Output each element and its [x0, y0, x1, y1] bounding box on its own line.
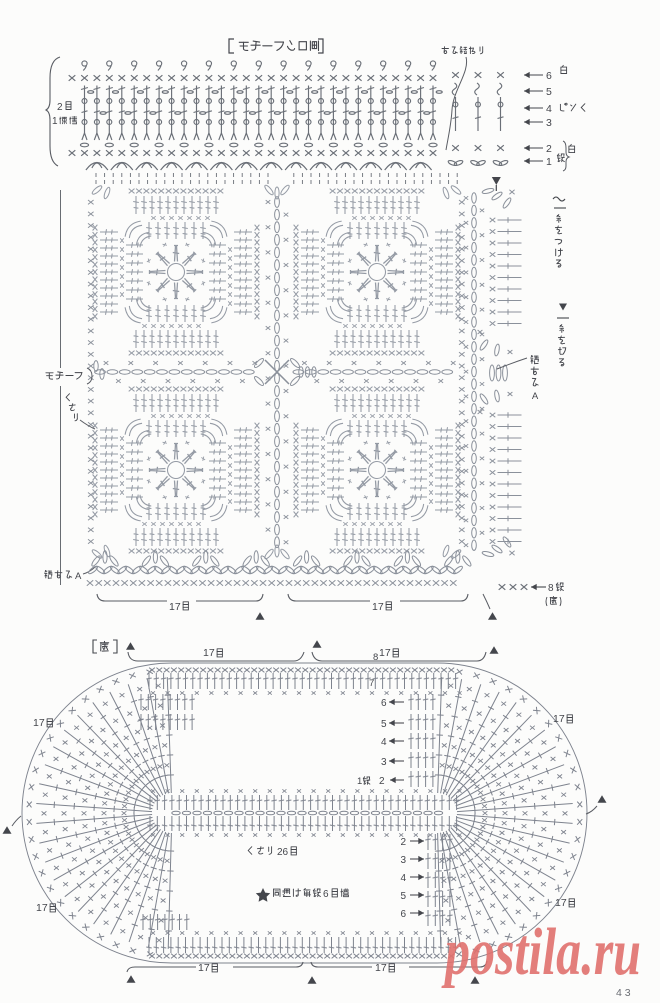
svg-text:3: 3 [546, 117, 552, 129]
svg-text:2: 2 [57, 102, 63, 113]
svg-text:2: 2 [379, 776, 385, 787]
svg-text:6: 6 [546, 70, 552, 82]
svg-text:5: 5 [381, 719, 387, 730]
svg-text:6: 6 [323, 889, 329, 900]
svg-text:17: 17 [169, 601, 181, 613]
svg-text:17: 17 [555, 897, 567, 909]
svg-text:1: 1 [357, 776, 362, 787]
svg-text:8: 8 [548, 583, 554, 594]
svg-text:3: 3 [400, 855, 406, 866]
svg-text:17: 17 [372, 601, 384, 613]
svg-text:7: 7 [369, 678, 374, 689]
svg-text:17: 17 [203, 647, 215, 659]
svg-text:4 3: 4 3 [616, 987, 631, 999]
svg-text:4: 4 [400, 873, 406, 884]
svg-text:2: 2 [400, 837, 406, 848]
svg-text:1: 1 [546, 156, 552, 168]
svg-text:17: 17 [375, 962, 387, 974]
svg-text:6: 6 [400, 909, 406, 920]
svg-text:17: 17 [379, 647, 391, 659]
svg-text:1: 1 [52, 116, 58, 127]
svg-text:A: A [532, 391, 539, 402]
svg-text:2: 2 [546, 143, 552, 155]
svg-text:6: 6 [381, 698, 387, 709]
svg-text:17: 17 [553, 713, 565, 725]
svg-text:4: 4 [381, 737, 387, 748]
svg-text:26: 26 [277, 847, 289, 858]
svg-text:5: 5 [546, 86, 552, 98]
svg-text:4: 4 [546, 103, 552, 115]
svg-text:17: 17 [198, 962, 210, 974]
svg-text:postila.ru: postila.ru [441, 915, 641, 989]
svg-text:5: 5 [400, 891, 406, 902]
svg-text:17: 17 [36, 902, 48, 914]
svg-text:3: 3 [381, 757, 387, 768]
svg-text:17: 17 [33, 717, 45, 729]
svg-text:A: A [75, 571, 82, 582]
svg-text:8: 8 [373, 652, 378, 663]
